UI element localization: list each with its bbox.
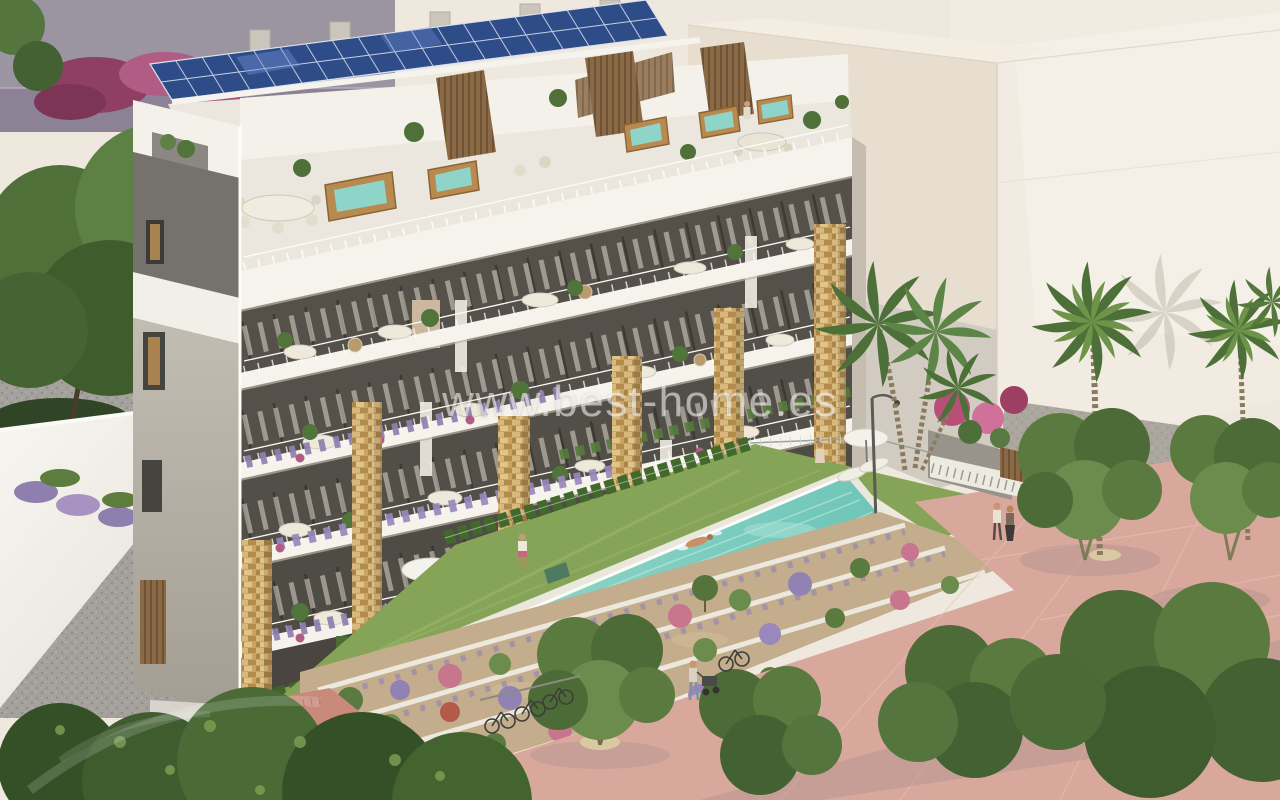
person-on-roof [744, 101, 750, 107]
watermark-text: www.best-home.es [442, 377, 838, 427]
gable-end-wall [133, 100, 240, 714]
architectural-render: www.best-home.es [0, 0, 1280, 800]
roof-dining-table [242, 195, 314, 221]
